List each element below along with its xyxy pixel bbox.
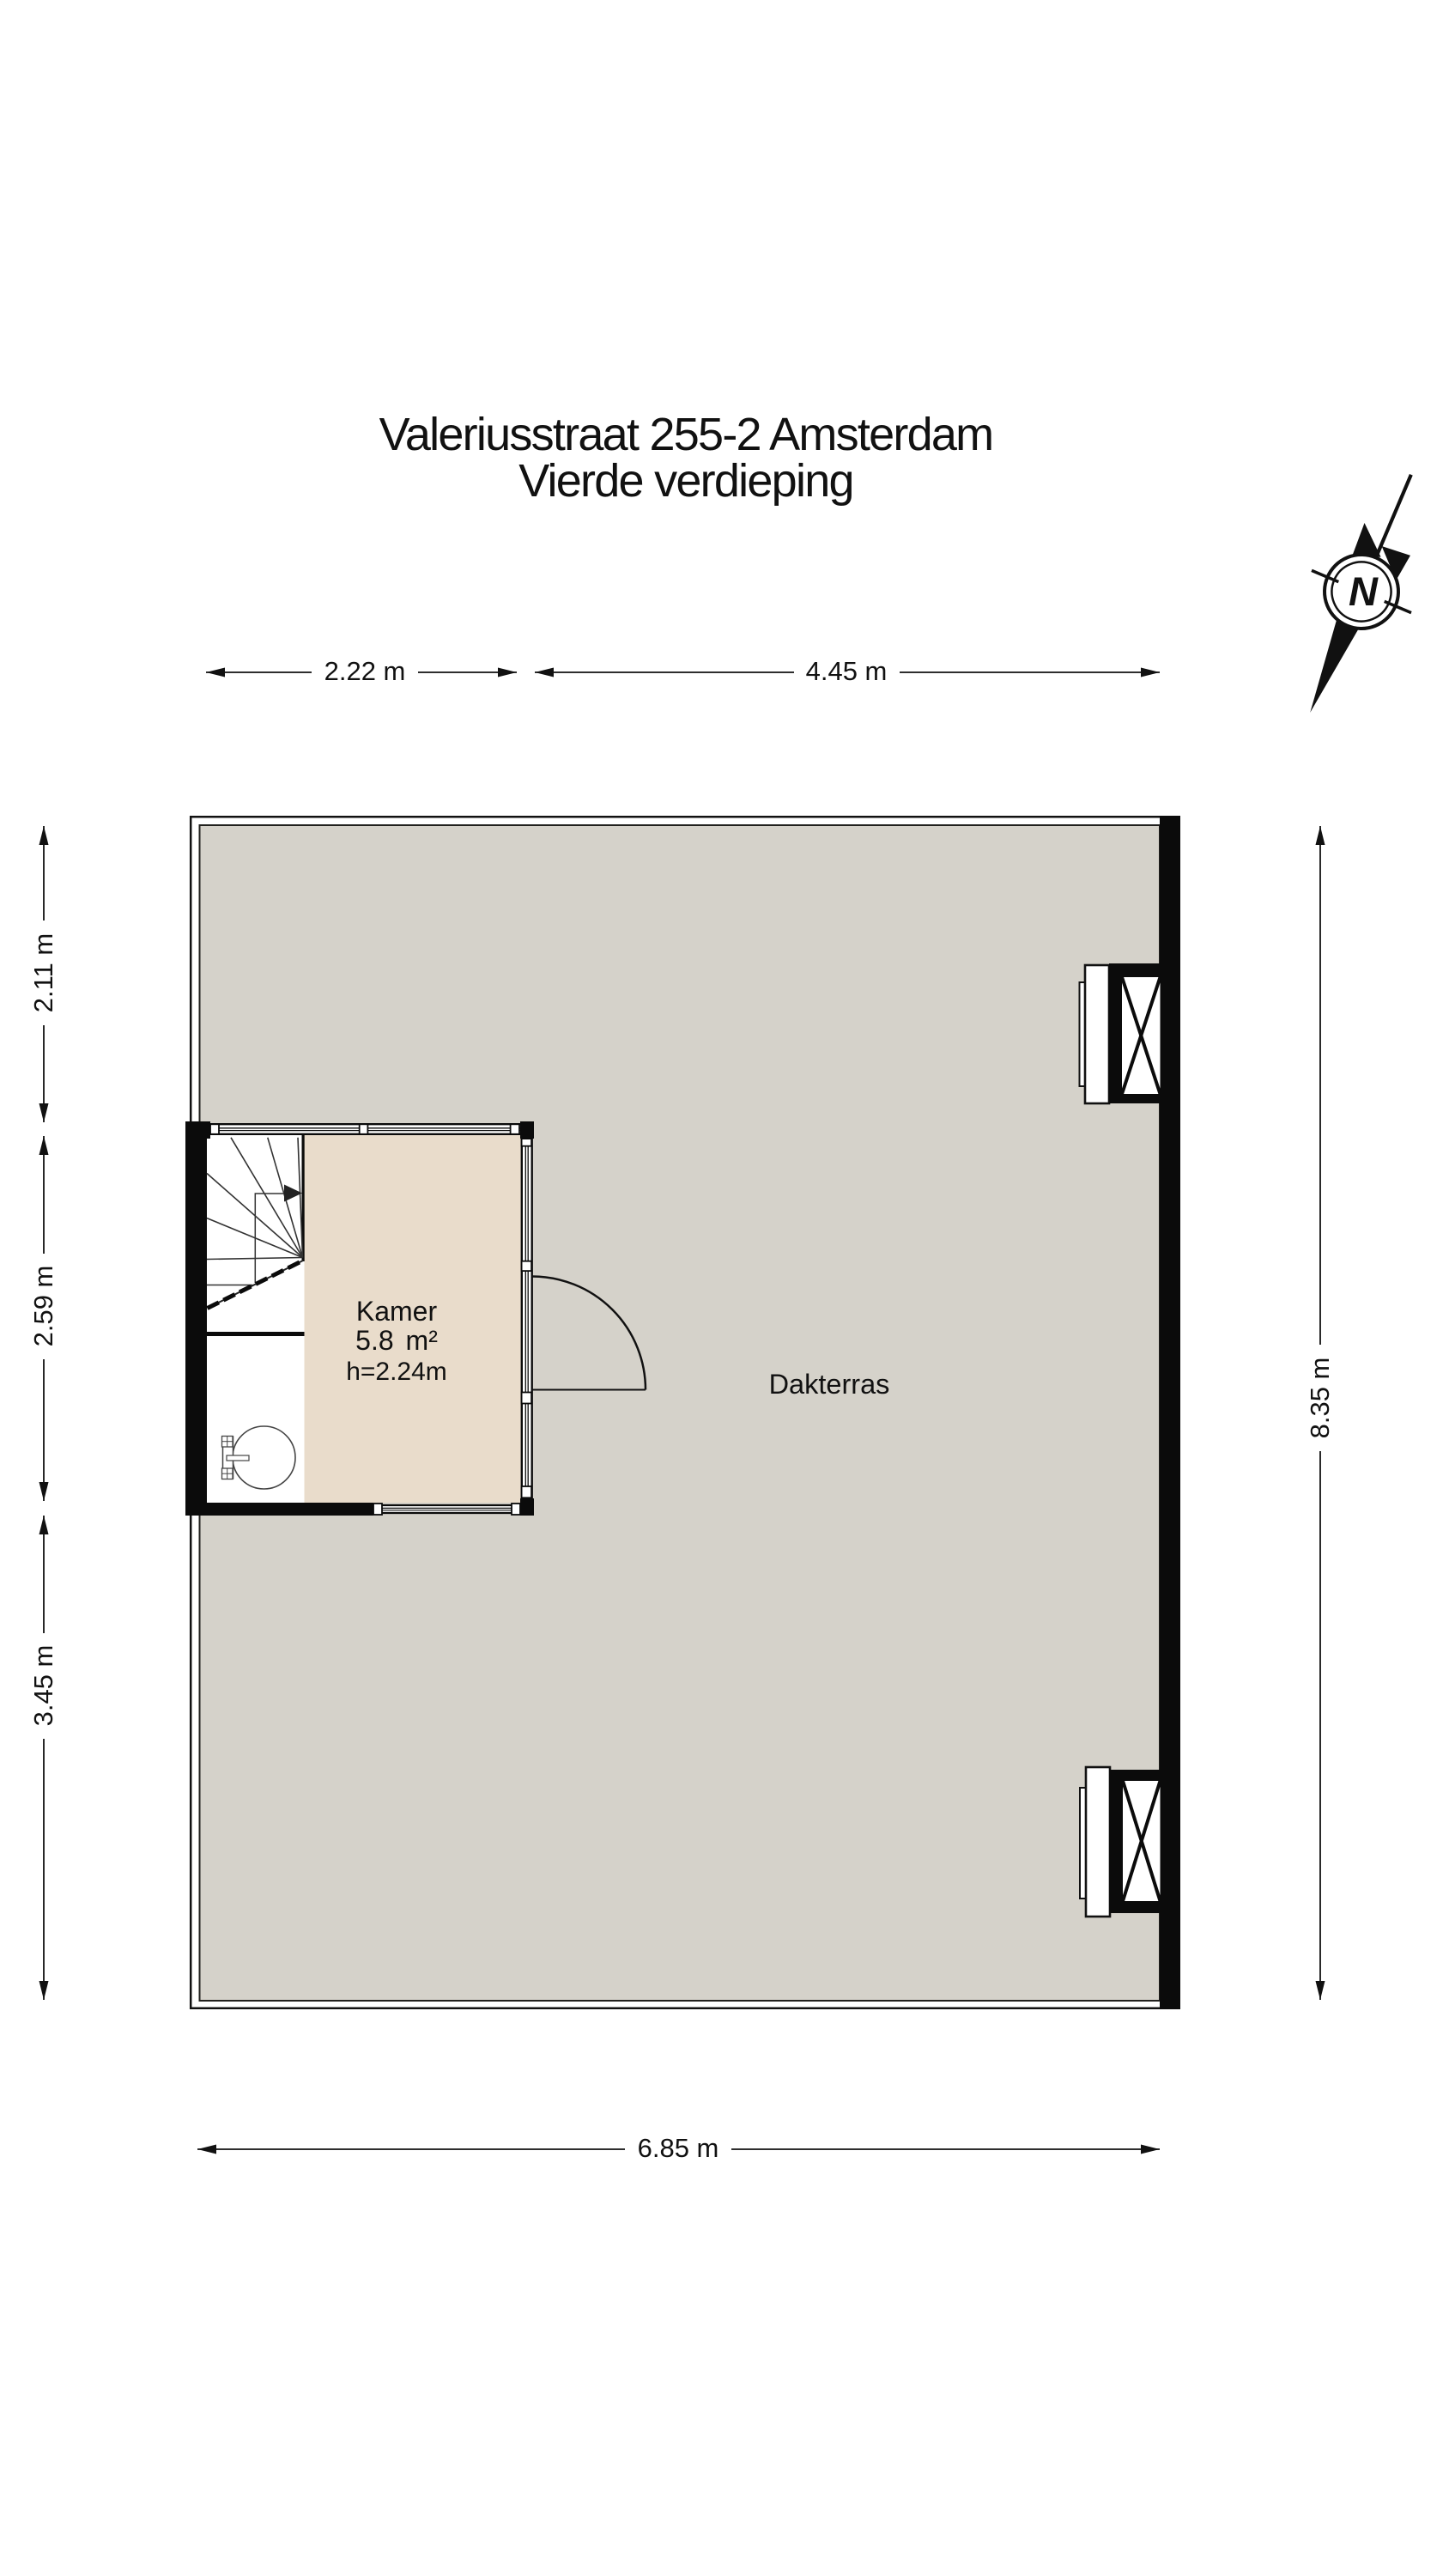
svg-text:5.8 m²: 5.8 m²: [355, 1325, 438, 1356]
svg-text:8.35 m: 8.35 m: [1305, 1358, 1335, 1439]
svg-text:4.45 m: 4.45 m: [806, 656, 888, 686]
svg-text:Dakterras: Dakterras: [769, 1369, 890, 1400]
svg-text:6.85 m: 6.85 m: [638, 2133, 719, 2163]
svg-text:2.22 m: 2.22 m: [324, 656, 406, 686]
svg-text:Vierde verdieping: Vierde verdieping: [518, 455, 853, 507]
svg-text:2.11 m: 2.11 m: [28, 933, 58, 1012]
svg-text:3.45 m: 3.45 m: [28, 1645, 58, 1727]
svg-text:Valeriusstraat 255-2 Amsterdam: Valeriusstraat 255-2 Amsterdam: [379, 409, 993, 460]
svg-text:N: N: [1349, 568, 1379, 614]
svg-text:Kamer: Kamer: [356, 1296, 438, 1327]
svg-text:2.59 m: 2.59 m: [28, 1266, 58, 1347]
svg-text:h=2.24m: h=2.24m: [346, 1358, 447, 1386]
